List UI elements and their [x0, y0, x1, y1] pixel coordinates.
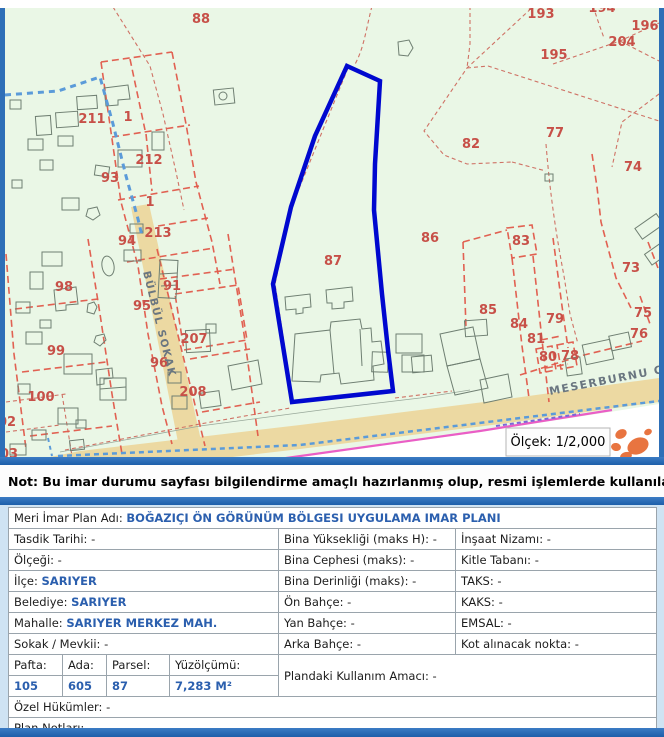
parcel-label-93: 93 [101, 171, 119, 186]
cell-parsel-value: 87 [107, 676, 170, 697]
cell-tasdik-tarihi: Tasdik Tarihi: - [9, 529, 279, 550]
parcel-label-208: 208 [179, 385, 206, 400]
parcel-label-81: 81 [527, 332, 545, 347]
cadastral-map[interactable]: 8819319419620419577827421112129312139486… [5, 8, 659, 461]
cell-sokak-mevkii: Sokak / Mevkii: - [9, 634, 279, 655]
plan-info-table: Meri İmar Plan Adı: BOĞAZIÇI ÖN GÖRÜNÜM … [8, 507, 657, 737]
disclaimer-note: Not: Bu imar durumu sayfası bilgilendirm… [0, 474, 664, 489]
parcel-label-94: 94 [118, 234, 136, 249]
cell-pafta-header: Pafta: [9, 655, 63, 676]
cell-kitle-tabani: Kitle Tabanı: - [456, 550, 657, 571]
cell-bina-derinligi: Bina Derinliği (maks): - [279, 571, 456, 592]
cell-olcegi: Ölçeği: - [9, 550, 279, 571]
separator-bar-top [0, 457, 664, 465]
parcel-label-98: 98 [55, 280, 73, 295]
parcel-label-193: 193 [527, 8, 554, 22]
parcel-label-83: 83 [512, 234, 530, 249]
cell-insaat-nizami: İnşaat Nizamı: - [456, 529, 657, 550]
scale-box: Ölçek: 1/2,000 [506, 428, 610, 456]
parcel-label-77: 77 [546, 126, 564, 141]
plan-name-label: Meri İmar Plan Adı: [14, 511, 123, 525]
cell-belediye: Belediye: SARIYER [9, 592, 279, 613]
parcel-label-196: 196 [631, 19, 658, 34]
parcel-label-79: 79 [546, 312, 564, 327]
separator-bar-middle [0, 497, 664, 505]
bottom-bar [0, 728, 664, 737]
parcel-label-73: 73 [622, 261, 640, 276]
parcel-label-75: 75 [634, 306, 652, 321]
parcel-label-91: 91 [163, 279, 181, 294]
parcel-label-100: 100 [27, 390, 54, 405]
cell-yuzolcumu-value: 7,283 M² [170, 676, 279, 697]
parcel-label-211: 211 [78, 112, 105, 127]
parcel-label-1: 1 [145, 195, 154, 210]
plan-name-value: BOĞAZIÇI ÖN GÖRÜNÜM BÖLGESI UYGULAMA IMA… [126, 511, 500, 525]
plan-info-section: Meri İmar Plan Adı: BOĞAZIÇI ÖN GÖRÜNÜM … [0, 505, 664, 728]
note-band: Not: Bu imar durumu sayfası bilgilendirm… [0, 465, 664, 497]
parcel-label-207: 207 [180, 332, 207, 347]
parcel-label-87: 87 [324, 254, 342, 269]
cell-kot-alinacak: Kot alınacak nokta: - [456, 634, 657, 655]
parcel-label-74: 74 [624, 160, 642, 175]
cell-bina-cephesi: Bina Cephesi (maks): - [279, 550, 456, 571]
cell-on-bahce: Ön Bahçe: - [279, 592, 456, 613]
parcel-label-84: 84 [510, 317, 528, 332]
cell-arka-bahce: Arka Bahçe: - [279, 634, 456, 655]
parcel-label-78: 78 [561, 349, 579, 364]
map-panel: 8819319419620419577827421112129312139486… [0, 0, 664, 461]
cell-yuzolcumu-header: Yüzölçümü: [170, 655, 279, 676]
cell-pafta-value: 105 [9, 676, 63, 697]
parcel-label-76: 76 [630, 327, 648, 342]
parcel-label-204: 204 [608, 35, 635, 50]
parcel-label-1: 1 [123, 110, 132, 125]
cell-parsel-header: Parsel: [107, 655, 170, 676]
map-border-right [659, 8, 664, 461]
parcel-label-82: 82 [462, 137, 480, 152]
parcel-label-194: 194 [588, 8, 615, 16]
cell-plandaki-kullanim: Plandaki Kullanım Amacı: - [279, 655, 657, 697]
parcel-label-212: 212 [135, 153, 162, 168]
cell-emsal: EMSAL: - [456, 613, 657, 634]
imar-durumu-page: 8819319419620419577827421112129312139486… [0, 0, 664, 737]
cell-kaks: KAKS: - [456, 592, 657, 613]
parcel-label-99: 99 [47, 344, 65, 359]
cell-ozel-hukumler: Özel Hükümler: - [9, 697, 657, 718]
row-plan-name: Meri İmar Plan Adı: BOĞAZIÇI ÖN GÖRÜNÜM … [9, 508, 657, 529]
parcel-label-195: 195 [540, 48, 567, 63]
cell-yan-bahce: Yan Bahçe: - [279, 613, 456, 634]
cell-ada-header: Ada: [63, 655, 107, 676]
cell-ada-value: 605 [63, 676, 107, 697]
cell-mahalle: Mahalle: SARIYER MERKEZ MAH. [9, 613, 279, 634]
cell-taks: TAKS: - [456, 571, 657, 592]
parcel-label-80: 80 [539, 350, 557, 365]
parcel-label-02: 02 [5, 415, 16, 430]
cell-bina-yuksekligi: Bina Yüksekliği (maks H): - [279, 529, 456, 550]
cell-ilce: İlçe: SARIYER [9, 571, 279, 592]
parcel-label-88: 88 [192, 12, 210, 27]
scale-label: Ölçek: 1/2,000 [511, 433, 606, 450]
parcel-label-85: 85 [479, 303, 497, 318]
parcel-label-213: 213 [144, 226, 171, 241]
parcel-label-86: 86 [421, 231, 439, 246]
